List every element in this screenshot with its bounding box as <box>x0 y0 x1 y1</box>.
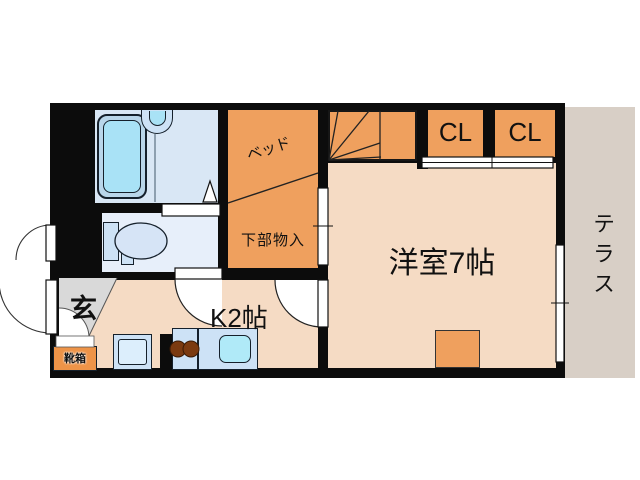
entrance-door <box>46 280 57 334</box>
closet-left-label: CL <box>428 117 483 148</box>
stairs-fan-lines <box>329 111 381 160</box>
western-room-label: 洋室7帖 <box>328 238 556 282</box>
utility-door <box>46 225 56 261</box>
under-bed-storage-label: 下部物入 <box>241 229 305 250</box>
bathroom-door-triangle-icon <box>203 181 217 202</box>
stove-burners-icon <box>170 341 199 357</box>
shoe-box-label: 靴箱 <box>53 350 97 366</box>
toilet-bowl-icon <box>115 223 167 259</box>
western-room-door <box>318 280 328 327</box>
genkan-step <box>56 336 94 347</box>
entrance-label: 玄 <box>70 287 97 326</box>
bathroom-door <box>162 204 220 216</box>
kitchen-label: K2帖 <box>210 298 268 335</box>
terrace-label: テラス <box>586 212 618 302</box>
floorplan-canvas: ベッド 下部物入 CL CL 洋室7帖 K2帖 玄 靴箱 テラス <box>0 0 640 480</box>
washroom-door <box>175 268 222 279</box>
closet-right-label: CL <box>495 117 555 148</box>
